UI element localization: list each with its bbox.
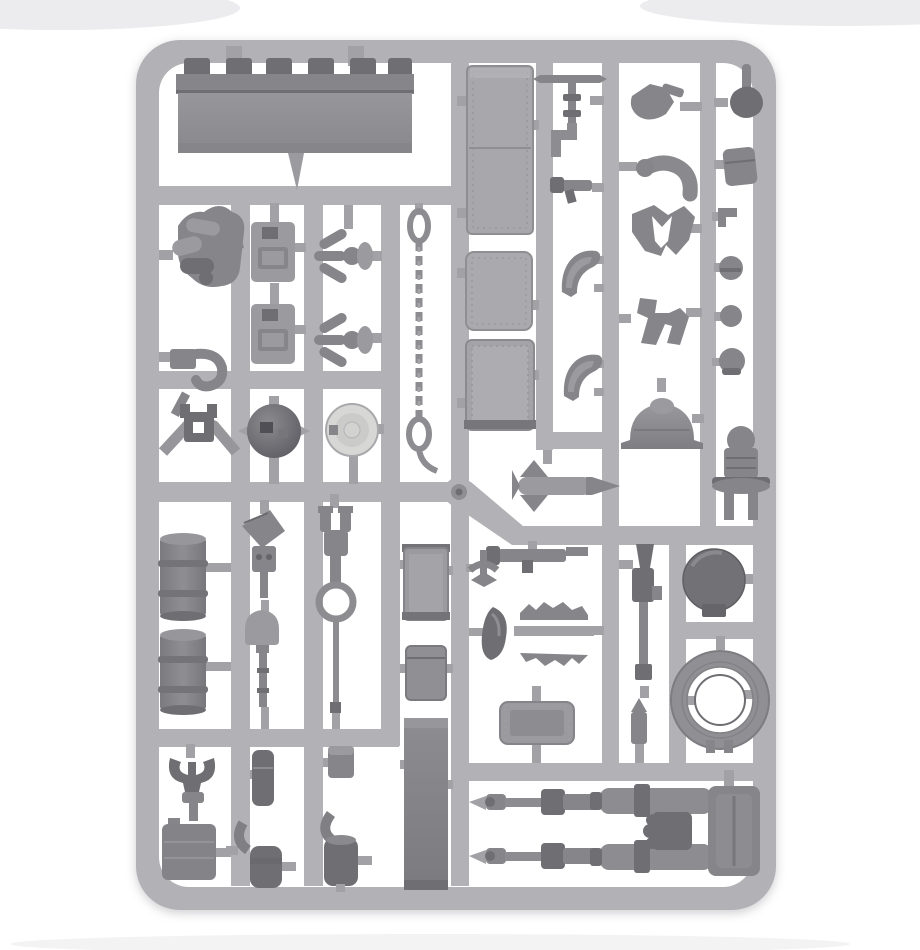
part-pouch-tall (250, 750, 274, 806)
injection-hub (444, 477, 474, 507)
part-stowage-box-b (457, 340, 539, 430)
part-armour-panel (400, 718, 453, 890)
photo-canvas (0, 0, 920, 950)
part-stowage-box-a (457, 252, 539, 330)
part-ammo-box (400, 646, 453, 700)
sprue-photo (0, 0, 920, 950)
part-stowage-box-long (457, 66, 539, 234)
part-stowage-box-c (400, 544, 453, 620)
